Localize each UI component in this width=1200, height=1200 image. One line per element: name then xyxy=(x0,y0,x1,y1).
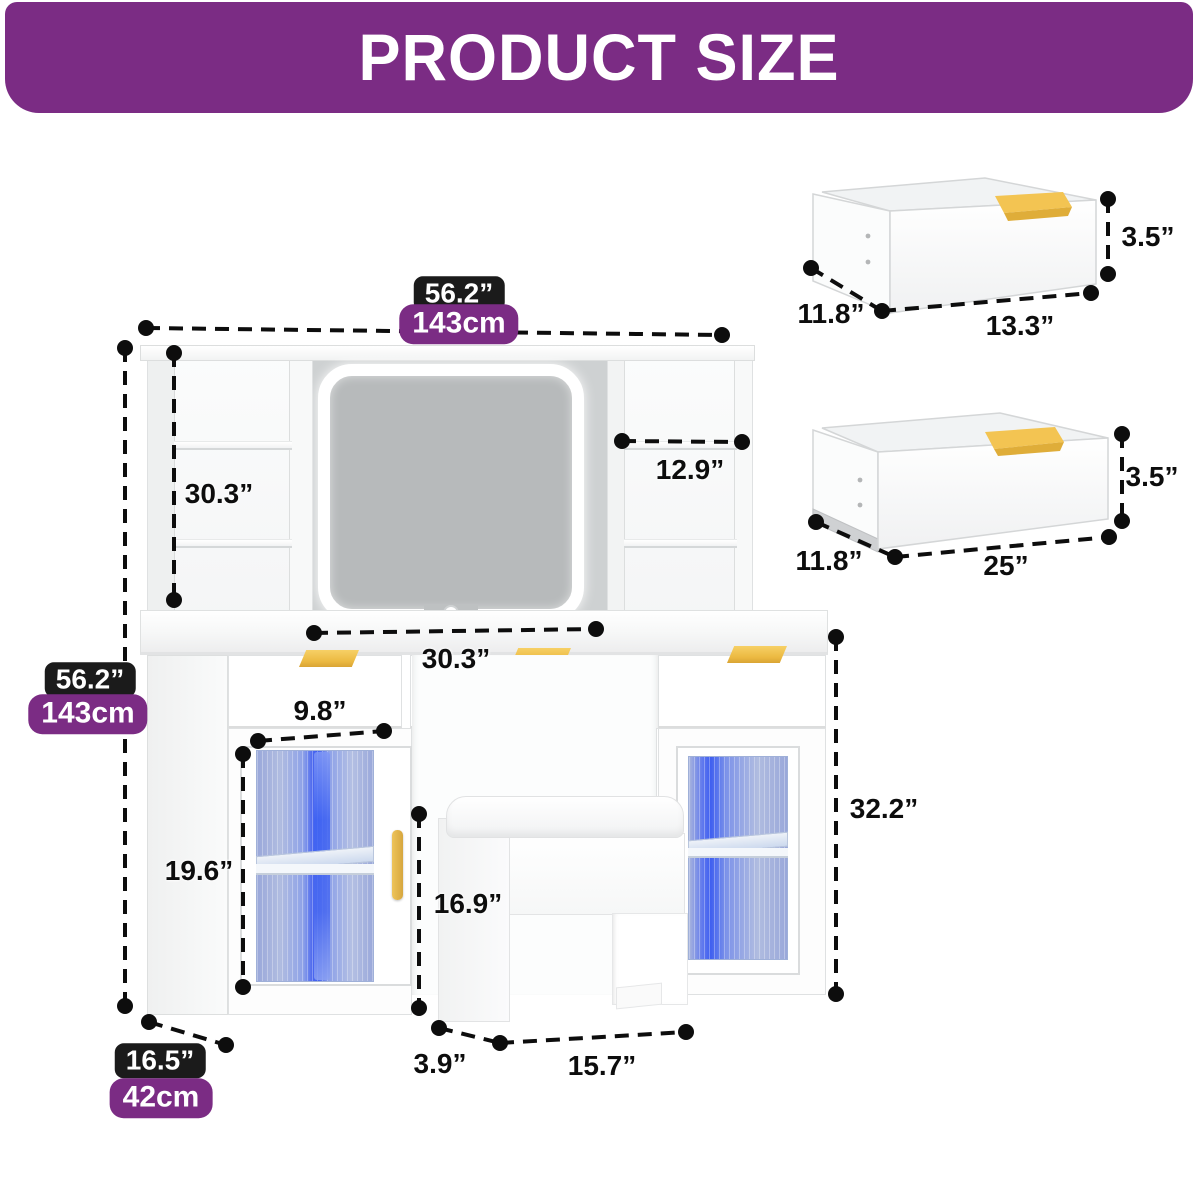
right-tower-left-stile xyxy=(608,346,625,633)
badge-depth-cm: 42cm xyxy=(110,1078,213,1118)
dim-label-stool-width: 15.7” xyxy=(568,1050,637,1082)
right-cabinet-door[interactable] xyxy=(676,746,800,975)
desk-drawer-right[interactable] xyxy=(658,655,826,728)
dim-label-shelf-height: 30.3” xyxy=(185,478,254,510)
right-shelf-tower xyxy=(607,345,753,632)
dim-label-large-drawer-depth: 11.8” xyxy=(796,545,863,577)
product-size-infographic: PRODUCT SIZE xyxy=(0,0,1200,1200)
badge-depth-inches: 16.5” xyxy=(115,1043,206,1078)
right-tower-shelf-1 xyxy=(624,441,737,450)
left-tower-shelf-1 xyxy=(174,441,292,450)
led-mirror xyxy=(318,364,584,621)
left-drawer-handle-icon[interactable] xyxy=(299,650,359,667)
dim-label-large-drawer-width: 25” xyxy=(983,550,1028,582)
dim-label-stool-height: 16.9” xyxy=(434,888,503,920)
left-cabinet-shelf-edge xyxy=(256,864,374,875)
small-drawer-25in xyxy=(805,405,1115,560)
dim-label-large-drawer-height: 3.5” xyxy=(1126,461,1179,493)
header-banner: PRODUCT SIZE xyxy=(5,2,1193,113)
right-cabinet-glass-pane xyxy=(688,756,788,960)
left-tower-shelf-2 xyxy=(174,539,292,548)
left-tower-right-stile xyxy=(289,346,312,633)
left-cabinet-door-handle-icon[interactable] xyxy=(392,830,403,900)
badge-overall-height-inches: 56.2” xyxy=(45,662,136,697)
right-cabinet-shelf-edge xyxy=(688,848,788,858)
stool-foot xyxy=(616,983,662,1010)
dim-label-small-drawer-depth: 11.8” xyxy=(798,298,865,330)
page-title: PRODUCT SIZE xyxy=(358,20,839,95)
desk-left-side-wall xyxy=(147,655,228,1015)
dim-label-stool-seat-depth: 3.9” xyxy=(414,1048,467,1080)
stool-left-side-panel xyxy=(438,818,510,1022)
dim-label-door-width: 9.8” xyxy=(294,695,347,727)
right-tower-shelf-2 xyxy=(624,539,737,548)
stool-seat-apron xyxy=(505,833,685,915)
left-tower-side-wall xyxy=(148,346,175,633)
dim-label-door-height: 19.6” xyxy=(165,855,234,887)
right-drawer-handle-icon[interactable] xyxy=(727,646,787,663)
hutch-top-board xyxy=(140,345,755,361)
badge-overall-width-cm: 143cm xyxy=(399,304,518,344)
left-cabinet-door[interactable] xyxy=(240,746,412,986)
badge-overall-height-cm: 143cm xyxy=(28,694,147,734)
dim-label-small-drawer-width: 13.3” xyxy=(986,310,1055,342)
right-tower-side-wall xyxy=(734,346,752,633)
dim-label-right-shelf-width: 12.9” xyxy=(656,454,725,486)
dim-label-tabletop-height: 32.2” xyxy=(850,793,919,825)
dim-label-small-drawer-height: 3.5” xyxy=(1122,221,1175,253)
stool-cushion xyxy=(446,796,684,838)
dim-label-mirror-width: 30.3” xyxy=(422,643,491,675)
